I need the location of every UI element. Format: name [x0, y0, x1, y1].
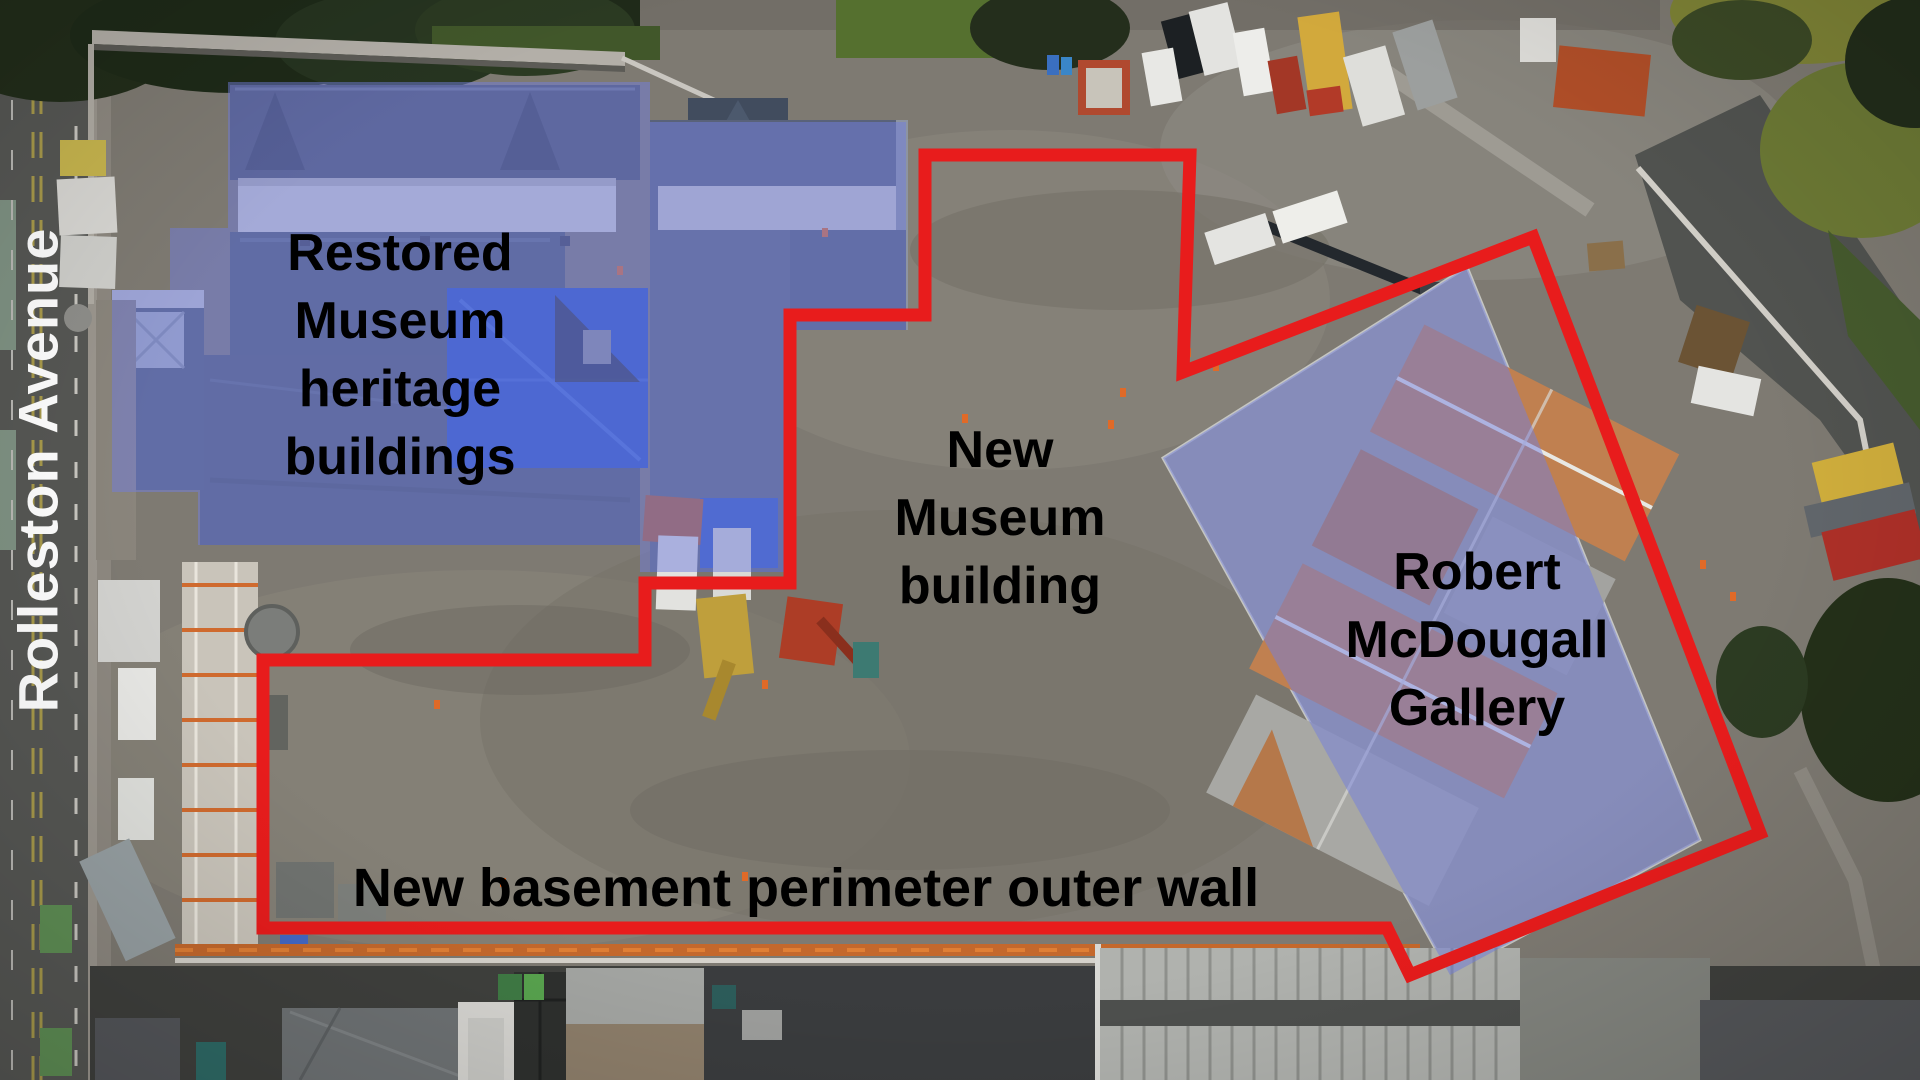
new-museum-label-line: building [895, 552, 1106, 620]
gallery-label-line: Gallery [1346, 674, 1609, 742]
heritage-label-line: buildings [284, 423, 515, 491]
heritage-label-line: heritage [284, 355, 515, 423]
heritage-buildings-label: Restored Museum heritage buildings [284, 219, 515, 491]
new-museum-label-line: Museum [895, 484, 1106, 552]
gallery-label-line: McDougall [1346, 606, 1609, 674]
annotated-aerial-photo: Rolleston Avenue Restored Museum heritag… [0, 0, 1920, 1080]
gallery-label: Robert McDougall Gallery [1346, 538, 1609, 742]
heritage-label-line: Museum [284, 287, 515, 355]
new-museum-label: New Museum building [895, 416, 1106, 620]
heritage-label-line: Restored [284, 219, 515, 287]
new-museum-label-line: New [895, 416, 1106, 484]
gallery-label-line: Robert [1346, 538, 1609, 606]
street-label-rolleston-avenue: Rolleston Avenue [6, 228, 71, 713]
basement-wall-label: New basement perimeter outer wall [353, 854, 1259, 922]
